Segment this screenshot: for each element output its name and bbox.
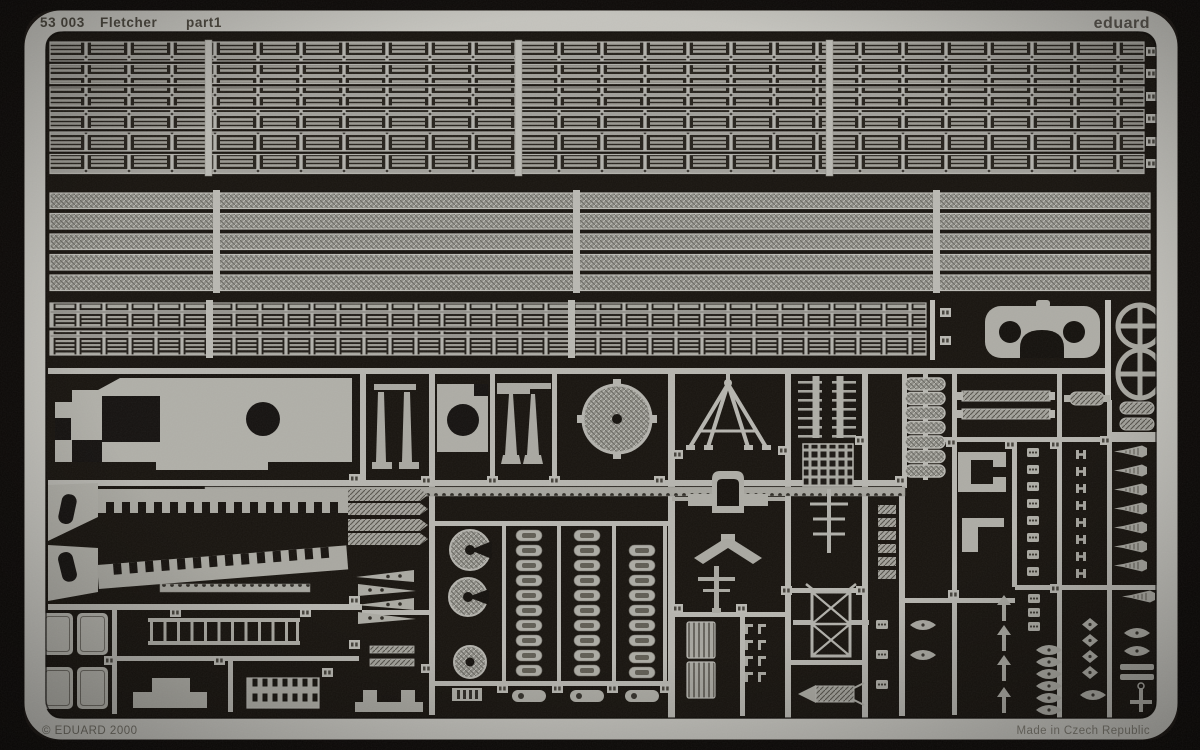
photo-of-etch-fret: 53 003 Fletcher part1 eduard © EDUARD 20…: [0, 0, 1200, 750]
film-grain-overlay: [0, 0, 1200, 750]
etch-fret-image: 53 003 Fletcher part1 eduard © EDUARD 20…: [0, 0, 1200, 750]
